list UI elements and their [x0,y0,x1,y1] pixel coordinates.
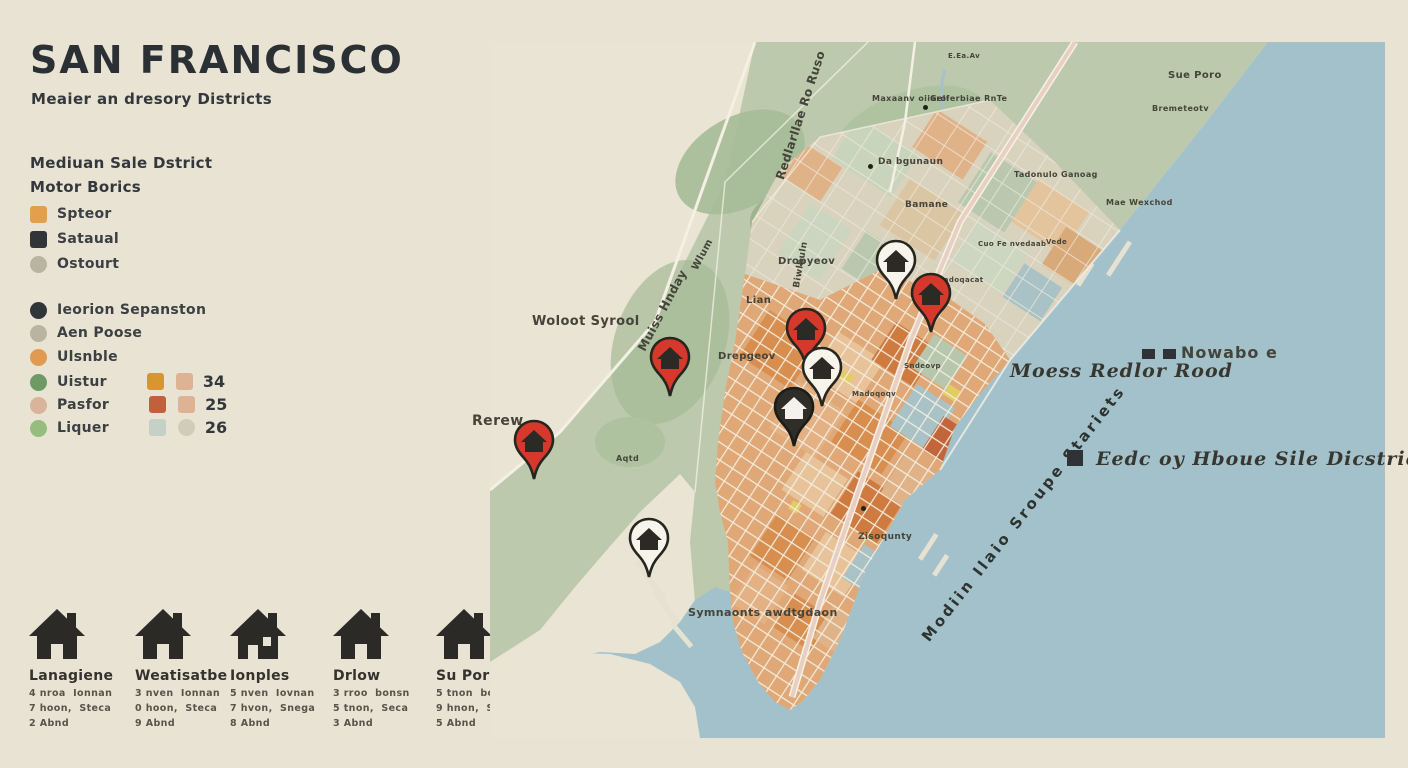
legend-item-label: Ulsnble [57,349,118,365]
legend-item-label: Uistur [57,374,107,390]
map-place-label: Tadonulo Ganoag [1014,170,1098,179]
value-chip-1 [147,373,164,390]
pin-house-icon [626,517,672,579]
legend-square-icon [1142,349,1155,359]
house-card: Drlow3 rroo bonsn5 tnon, Seca3 Abnd [333,608,437,729]
house-detail-line: 3 rroo bonsn [333,688,437,699]
map-pin-red[interactable] [511,419,557,485]
house-icon [333,608,391,660]
legend-circle-swatch [30,420,47,437]
value-chip-2 [176,373,193,390]
legend-item: Ulsnble [30,347,118,367]
map-place-label: Drepgeov [718,351,776,362]
pin-house-icon [647,336,693,398]
annotation-redlor-road: Moess Redlor Rood [1010,360,1233,382]
map-place-label: Bremeteotv [1152,104,1209,113]
legend-circle-swatch [30,374,47,391]
infographic-page: { "header":{ "title":"SAN FRANCISCO", "s… [0,0,1408,768]
house-icon [436,608,494,660]
house-detail-line: 7 hoon, Steca [29,703,133,714]
legend-circle-swatch [30,302,47,319]
map-place-label: Bamane [905,200,948,210]
legend-circle-swatch [30,256,47,273]
legend-item: Uistur34 [30,372,317,392]
map-place-label: Cuo Fe nvedaab [978,240,1046,248]
house-name: Lanagiene [29,668,133,684]
house-icon [230,608,288,660]
house-card: Lanagiene4 nroa Ionnan7 hoon, Steca2 Abn… [29,608,133,729]
house-detail-line: 9 Abnd [135,718,239,729]
house-detail-line: 3 nven Ionnan [135,688,239,699]
map-place-label: Mae Wexchod [1106,198,1173,207]
house-icon [29,608,87,660]
legend-item-label: Ostourt [57,256,119,272]
value-chip-2 [178,419,195,436]
legend-item: Spteor [30,204,112,224]
legend-district-list: Ieorion SepanstonAen PooseUlsnbleUistur3… [30,300,330,445]
legend-item-label: Aen Poose [57,325,142,341]
house-detail-line: 5 nven Iovnan [230,688,334,699]
legend-heading-line2: Motor Borics [30,178,141,196]
pin-house-icon [771,386,817,448]
map-place-label: Sndeovp [904,362,941,370]
map-pin-red[interactable] [647,336,693,402]
map-place-label: Madoqoqv [852,390,896,398]
map-place-label: Symnaonts awdtgdaon [688,606,838,619]
legend-item-label: Pasfor [57,397,109,413]
legend-square-swatch [30,206,47,223]
legend-circle-swatch [30,397,47,414]
house-detail-line: 8 Abnd [230,718,334,729]
map-pin-white[interactable] [626,517,672,583]
map-place-label: E.Ea.Av [948,52,980,60]
legend-item-label: Spteor [57,206,112,222]
map-pin-red[interactable] [908,272,954,338]
map-place-label: Aqtd [616,454,639,463]
legend-square-swatch [30,231,47,248]
map-place-label: Da bgunaun [878,157,943,167]
legend-square-icon [1163,349,1176,359]
map-place-label: Vede [1046,238,1067,246]
legend-item: Pasfor25 [30,395,319,415]
legend-heading-line1: Mediuan Sale Dstrict [30,154,212,172]
legend-motor-list: SpteorSataualOstourt [30,204,330,284]
map-place-label: Dropyeov [778,256,835,267]
house-name: Drlow [333,668,437,684]
value-chip-1 [149,396,166,413]
map-place-label: Zisoqunty [858,532,912,542]
house-card: Ionples5 nven Iovnan7 hvon, Snega8 Abnd [230,608,334,729]
legend-item: Aen Poose [30,323,142,343]
map-place-label: Gelferbiae RnTe [930,94,1007,103]
poi-dot-icon [923,105,928,110]
house-name: Ionples [230,668,334,684]
map-place-label: Woloot Syrool [532,314,640,329]
legend-item-value: 25 [205,395,227,414]
house-detail-line: 2 Abnd [29,718,133,729]
page-subtitle: Meaier an dresory Districts [31,90,272,108]
house-detail-line: 3 Abnd [333,718,437,729]
legend-item-value: 26 [205,418,227,437]
house-detail-line: 0 hoon, Steca [135,703,239,714]
city-map: Nowabo e Moess Redlor Rood Eedc oy Hboue… [490,42,1385,738]
legend-item: Ostourt [30,254,119,274]
legend-item-label: Ieorion Sepanston [57,302,206,318]
house-detail-line: 4 nroa Ionnan [29,688,133,699]
legend-item-label: Sataual [57,231,119,247]
page-title: SAN FRANCISCO [30,38,404,82]
legend-item-value: 34 [203,372,225,391]
pin-house-icon [511,419,557,481]
house-detail-line: 7 hvon, Snega [230,703,334,714]
value-chip-2 [178,396,195,413]
legend-item: Sataual [30,229,119,249]
house-icon [135,608,193,660]
value-chip-1 [149,419,166,436]
map-place-label: Lian [746,295,771,306]
legend-item: Liquer26 [30,418,319,438]
poi-dot-icon [868,164,873,169]
map-place-label: Sue Poro [1168,70,1222,81]
legend-item: Ieorion Sepanston [30,300,206,320]
legend-circle-swatch [30,325,47,342]
legend-item-label: Liquer [57,420,109,436]
legend-circle-swatch [30,349,47,366]
house-detail-line: 5 tnon, Seca [333,703,437,714]
map-pin-black[interactable] [771,386,817,452]
annotation-eedc: Eedc oy Hboue Sile Dicstries [1096,448,1408,470]
house-name: Weatisatbe [135,668,239,684]
pin-house-icon [908,272,954,334]
house-card: Weatisatbe3 nven Ionnan0 hoon, Steca9 Ab… [135,608,239,729]
poi-dot-icon [861,506,866,511]
